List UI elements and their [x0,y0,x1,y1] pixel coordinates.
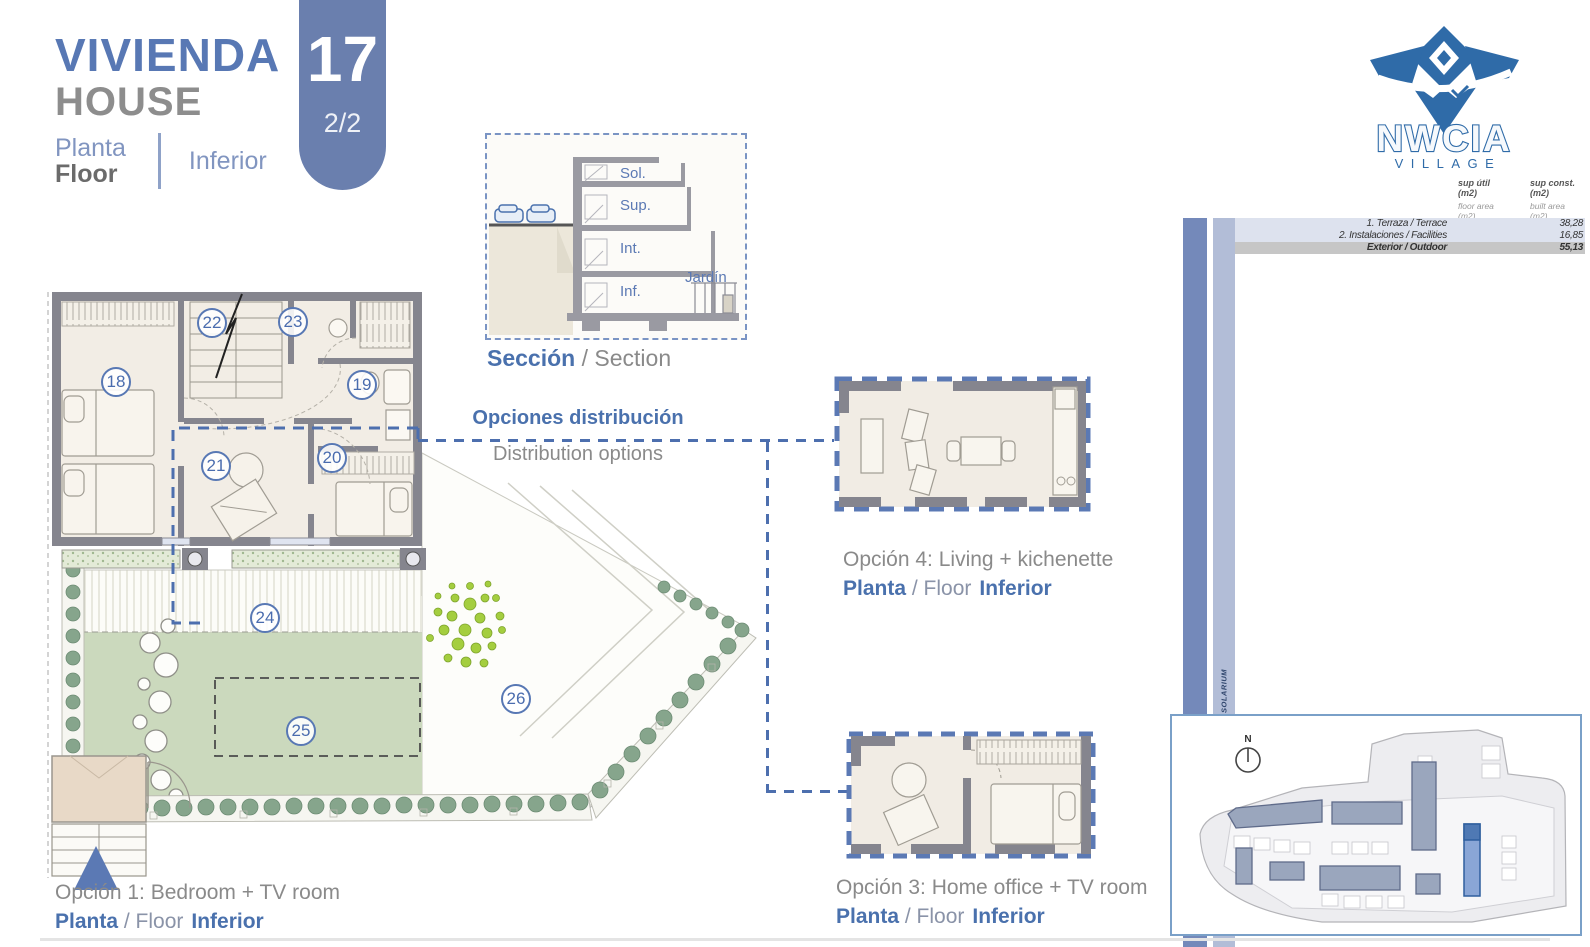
brand-logo: NWCIA VILLAGE [1352,20,1537,170]
option3-title: Opción 3: Home office + TV room [836,876,1147,900]
site-plan-drawing: N [1172,716,1580,934]
floorline-value: Inferior [972,905,1044,928]
floorline-value: Inferior [979,577,1051,600]
option4-caption: Opción 4: Living + kichenette Planta / F… [843,548,1113,601]
option1-title: Opción 1: Bedroom + TV room [55,881,340,905]
floorline-sep: / Floor [906,577,971,600]
connector-horizontal-2 [766,790,848,793]
option4-title: Opción 4: Living + kichenette [843,548,1113,572]
option1-floorline: Planta / FloorInferior [55,910,340,934]
section-label-int: Int. [620,240,641,257]
closet [62,302,174,326]
brand-name: NWCIA [1376,118,1511,159]
room-badge-26: 26 [501,684,531,714]
bed-room-20 [336,482,412,536]
room-badge-20: 20 [317,443,347,473]
distribution-options: Opciones distribución Distribution optio… [468,407,688,466]
floorline-es: Planta [55,910,118,933]
brand-tagline: VILLAGE [1395,156,1502,170]
floorline-es: Planta [836,905,899,928]
house-number-badge: 17 2/2 [299,0,386,190]
option3-caption: Opción 3: Home office + TV room Planta /… [836,876,1147,929]
room-badge-21: 21 [201,451,231,481]
page-title-en: HOUSE [55,80,280,124]
option4-figure [833,373,1092,520]
option3-figure [845,728,1097,867]
floor-label-en: Floor [55,161,126,187]
table-header: sup útil(m2) floor area(m2) sup const.(m… [1183,178,1585,218]
option4-plan [833,373,1092,515]
section-label-solarium: Sol. [620,165,646,182]
house-number: 17 [299,26,386,92]
floorline-es: Planta [843,577,906,600]
col-header-floor-area: sup útil(m2) floor area(m2) [1458,178,1524,221]
floor-label-es: Planta [55,135,126,161]
distribution-es: Opciones distribución [468,407,688,430]
table-row: Exterior / Outdoor55,13 [1235,242,1585,254]
floorline-sep: / Floor [899,905,964,928]
option4-floorline: Planta / FloorInferior [843,577,1113,601]
divider [158,133,161,189]
page: VIVIENDA HOUSE Planta Floor Inferior 17 … [0,0,1590,947]
room-badge-19: 19 [347,370,377,400]
floorline-sep: / Floor [118,910,183,933]
floor-row: Planta Floor Inferior [55,133,267,189]
col-header-built-area: sup const.(m2) built area(m2) [1530,178,1590,221]
planters [62,548,426,570]
room-badge-18: 18 [101,367,131,397]
main-floor-plan: 18 22 23 19 21 20 24 25 26 [40,278,760,898]
north-label: N [1244,734,1251,745]
floorline-value: Inferior [191,910,263,933]
option3-plan [845,728,1097,862]
floor-plan-drawing [40,278,760,898]
page-title-es: VIVIENDA [55,30,280,80]
section-label-sup: Sup. [620,197,651,214]
room-badge-23: 23 [278,307,308,337]
north-indicator: N [1236,734,1260,772]
connector-vertical [766,442,769,792]
nwcia-logo-icon: NWCIA VILLAGE [1352,20,1537,170]
floor-value: Inferior [189,147,267,176]
car-icon [495,205,555,222]
room-badge-24: 24 [250,603,280,633]
site-plan: N [1170,714,1582,936]
table-row: 1. Terraza / Terrace38,28 [1235,218,1585,230]
distribution-en: Distribution options [468,443,688,466]
page-edge [40,938,1550,941]
floor-labels: Planta Floor [55,135,126,187]
option1-caption: Opción 1: Bedroom + TV room Planta / Flo… [55,881,340,934]
page-indicator: 2/2 [299,108,386,139]
option3-floorline: Planta / FloorInferior [836,905,1147,929]
room-badge-25: 25 [286,716,316,746]
table-row: 2. Instalaciones / Facilities16,85 [1235,230,1585,242]
title-block: VIVIENDA HOUSE [55,30,280,124]
room-badge-22: 22 [197,308,227,338]
